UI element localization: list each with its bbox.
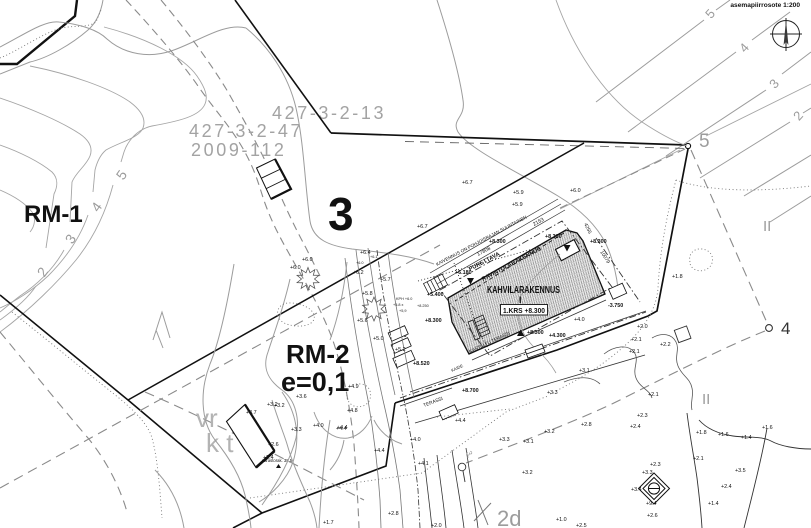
svg-text:+1.6: +1.6	[718, 432, 729, 438]
svg-text:+3.3: +3.3	[642, 470, 653, 476]
svg-text:+2.1: +2.1	[629, 349, 640, 355]
svg-text:427-3-2-47: 427-3-2-47	[189, 121, 303, 141]
svg-text:+2.4: +2.4	[630, 424, 641, 430]
svg-text:+1.7: +1.7	[323, 520, 334, 526]
svg-text:asemapiirrosote 1:200: asemapiirrosote 1:200	[730, 2, 800, 9]
svg-text:+3.2: +3.2	[274, 403, 285, 409]
svg-text:+5.9: +5.9	[513, 190, 524, 196]
svg-text:+5.9: +5.9	[512, 202, 523, 208]
svg-text:+5.8: +5.8	[362, 291, 373, 297]
svg-text:+3.2: +3.2	[522, 470, 533, 476]
svg-text:+5.400: +5.400	[427, 292, 444, 298]
svg-text:+6.7: +6.7	[417, 224, 428, 230]
svg-text:+6.4: +6.4	[360, 250, 371, 256]
svg-text:+5,9: +5,9	[399, 309, 407, 313]
svg-text:4: 4	[781, 319, 790, 338]
svg-text:+4.0: +4.0	[410, 437, 421, 443]
svg-text:+3.7: +3.7	[246, 410, 257, 416]
svg-text:2009-112: 2009-112	[191, 140, 287, 160]
svg-text:+4.4: +4.4	[455, 418, 466, 424]
svg-text:+8.520: +8.520	[413, 361, 430, 367]
svg-text:+6.2: +6.2	[353, 270, 364, 276]
svg-text:2d: 2d	[497, 506, 521, 528]
svg-text:+4.4: +4.4	[374, 448, 385, 454]
svg-text:+3.2: +3.2	[544, 429, 555, 435]
svg-text:+4.4: +4.4	[337, 425, 348, 431]
svg-text:+3.3: +3.3	[291, 427, 302, 433]
svg-text:427-3-2-13: 427-3-2-13	[272, 103, 386, 123]
svg-text:+1.4: +1.4	[708, 501, 719, 507]
svg-text:+6.7: +6.7	[462, 180, 473, 186]
svg-text:+4.8: +4.8	[347, 408, 358, 414]
svg-text:+2.4: +2.4	[721, 484, 732, 490]
svg-text:+2.3: +2.3	[650, 462, 661, 468]
svg-text:+2.6: +2.6	[647, 513, 658, 519]
svg-text:I: I	[519, 295, 522, 305]
svg-text:+2.0: +2.0	[637, 324, 648, 330]
svg-text:+2.8: +2.8	[388, 511, 399, 517]
svg-text:+8.300: +8.300	[545, 234, 562, 240]
svg-text:+6.0: +6.0	[356, 261, 364, 265]
svg-text:3: 3	[328, 188, 354, 240]
svg-text:-3.750: -3.750	[608, 303, 623, 309]
svg-text:+8.300: +8.300	[425, 318, 442, 324]
svg-text:+1.4: +1.4	[741, 435, 752, 441]
svg-text:+5.7: +5.7	[380, 277, 391, 283]
svg-text:+5.0: +5.0	[373, 336, 384, 342]
svg-text:+6.180: +6.180	[455, 270, 472, 276]
svg-text:+8.300: +8.300	[590, 239, 607, 245]
svg-text:+3.1: +3.1	[579, 368, 590, 374]
svg-text:+2.1: +2.1	[693, 456, 704, 462]
svg-text:+2.6: +2.6	[268, 442, 279, 448]
svg-text:+1.8: +1.8	[696, 430, 707, 436]
svg-text:+4.0: +4.0	[313, 423, 324, 429]
svg-text:+2.8: +2.8	[581, 422, 592, 428]
svg-text:+2.4: +2.4	[263, 455, 274, 461]
svg-text:+8.700: +8.700	[462, 388, 479, 394]
svg-text:RM-2: RM-2	[286, 339, 350, 369]
svg-text:+2.3: +2.3	[637, 413, 648, 419]
svg-text:e=0,1: e=0,1	[281, 367, 349, 397]
svg-text:II: II	[763, 218, 771, 235]
svg-text:+6.0: +6.0	[302, 257, 313, 263]
svg-text:+1.6: +1.6	[762, 425, 773, 431]
svg-text:+4.300: +4.300	[549, 333, 566, 339]
svg-text:+4.1: +4.1	[418, 461, 429, 467]
svg-text:5: 5	[699, 131, 710, 152]
svg-text:KAHVILARAKENNUS: KAHVILARAKENNUS	[487, 284, 560, 296]
svg-text:+5.2: +5.2	[395, 347, 406, 353]
svg-text:+3.6: +3.6	[296, 394, 307, 400]
svg-text:+3.5: +3.5	[735, 468, 746, 474]
svg-text:+8.300: +8.300	[527, 330, 544, 336]
svg-text:+8.300: +8.300	[489, 239, 506, 245]
svg-text:+4.9: +4.9	[348, 384, 359, 390]
svg-text:+3.3: +3.3	[547, 390, 558, 396]
svg-text:RM-1: RM-1	[24, 201, 83, 228]
svg-text:+2.1: +2.1	[648, 392, 659, 398]
svg-text:+2.5: +2.5	[576, 523, 587, 528]
svg-text:+1.8: +1.8	[672, 274, 683, 280]
svg-text:+6.0: +6.0	[570, 188, 581, 194]
svg-text:+6.1: +6.1	[370, 255, 378, 259]
svg-text:+5.6: +5.6	[357, 318, 368, 324]
svg-text:+2.1: +2.1	[631, 337, 642, 343]
svg-text:KPH +6.0: KPH +6.0	[396, 297, 412, 301]
svg-text:+5.8 x: +5.8 x	[393, 303, 404, 307]
svg-text:II: II	[702, 391, 710, 408]
svg-text:1.KRS +8.300: 1.KRS +8.300	[503, 306, 545, 315]
svg-text:+8.250: +8.250	[417, 304, 429, 308]
svg-text:+6.0: +6.0	[290, 265, 301, 271]
svg-text:+1.0: +1.0	[556, 517, 567, 523]
svg-text:+2.2: +2.2	[660, 342, 671, 348]
svg-text:+9.4: +9.4	[646, 501, 657, 507]
svg-text:+3.4: +3.4	[631, 487, 642, 493]
svg-text:+2.0: +2.0	[431, 523, 442, 528]
svg-text:+3.1: +3.1	[523, 439, 534, 445]
svg-text:+4.0: +4.0	[574, 317, 585, 323]
svg-text:+3.3: +3.3	[499, 437, 510, 443]
